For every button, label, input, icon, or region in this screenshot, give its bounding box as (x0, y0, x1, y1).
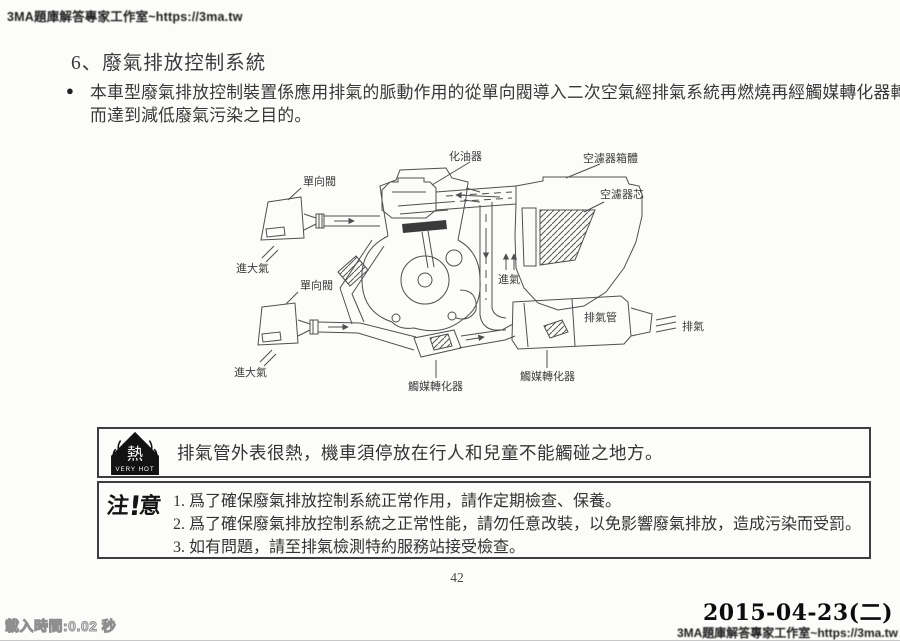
notice-icon-char-left: 注 (106, 494, 131, 519)
label-air-inlet-upper: 進大氣 (236, 261, 269, 275)
very-hot-icon: 熱 VERY HOT (107, 430, 163, 476)
label-check-valve-upper: 單向閥 (303, 174, 336, 188)
watermark-top: 3MA題庫解答專家工作室~https://3ma.tw (7, 6, 243, 25)
air-cleaner-element-shape (522, 202, 604, 266)
bullet-marker: ● (66, 83, 74, 99)
section-heading: 6、廢氣排放控制系統 (71, 46, 266, 75)
hot-icon-char: 熱 (127, 444, 143, 463)
label-catalytic-converter-muffler: 觸媒轉化器 (520, 369, 575, 383)
label-exhaust: 排氣 (682, 319, 704, 333)
page-number: 42 (0, 570, 900, 586)
exhaust-down-pipe (338, 240, 384, 324)
label-catalytic-converter-pipe: 觸媒轉化器 (408, 379, 463, 393)
catalytic-converter-pipe-shape (358, 323, 515, 378)
hot-icon-caption: VERY HOT (115, 466, 154, 473)
body-paragraph-line-1: 本車型廢氣排放控制裝置係應用排氣的脈動作用的從單向閥導入二次空氣經排氣系統再燃燒… (90, 79, 900, 103)
label-exhaust-pipe: 排氣管 (584, 310, 617, 324)
label-air-inlet-lower: 進大氣 (234, 365, 267, 379)
secondary-air-pipe (480, 202, 506, 330)
notice-items: 1. 爲了確保廢氣排放控制系統正常作用，請作定期檢查、保養。 2. 爲了確保廢氣… (173, 490, 861, 557)
manual-page: 3MA題庫解答專家工作室~https://3ma.tw 6、廢氣排放控制系統 ●… (0, 0, 900, 641)
notice-item-3: 3. 如有問題，請至排氣檢測特約服務站接受檢查。 (173, 536, 861, 559)
muffler-shape (512, 296, 676, 368)
label-air-cleaner-element: 空濾器芯 (600, 187, 644, 201)
hot-warning-box: 熱 VERY HOT 排氣管外表很熱，機車須停放在行人和兒童不能觸碰之地方。 (97, 427, 871, 478)
notice-icon: 注!意 (102, 491, 167, 557)
notice-box: 注!意 1. 爲了確保廢氣排放控制系統正常作用，請作定期檢查、保養。 2. 爲了… (97, 481, 871, 559)
check-valve-upper-shape (261, 188, 380, 262)
label-carburetor: 化油器 (449, 149, 482, 163)
watermark-bottom: 3MA題庫解答專家工作室~https://3ma.tw (677, 624, 898, 641)
label-intake: 進氣 (498, 272, 520, 286)
hot-warning-text: 排氣管外表很熱，機車須停放在行人和兒童不能觸碰之地方。 (177, 440, 663, 465)
body-paragraph-line-2: 而達到減低廢氣污染之目的。 (90, 102, 311, 126)
intake-arrows (506, 254, 514, 270)
load-time-text: 載入時間:0.02 秒 (5, 616, 116, 636)
label-check-valve-lower: 單向閥 (300, 278, 333, 292)
label-air-cleaner-case: 空濾器箱體 (583, 151, 638, 165)
notice-item-1: 1. 爲了確保廢氣排放控制系統正常作用，請作定期檢查、保養。 (173, 490, 861, 513)
notice-icon-char-right: 意 (138, 494, 163, 519)
emission-system-diagram: 化油器 空濾器箱體 空濾器芯 進氣 單向閥 進大氣 單向閥 進大氣 觸媒轉化器 … (0, 140, 900, 402)
date-stamp: 2015-04-23(二) (703, 595, 893, 627)
notice-item-2: 2. 爲了確保廢氣排放控制系統之正常性能，請勿任意改裝，以免影響廢氣排放，造成污… (173, 513, 861, 536)
